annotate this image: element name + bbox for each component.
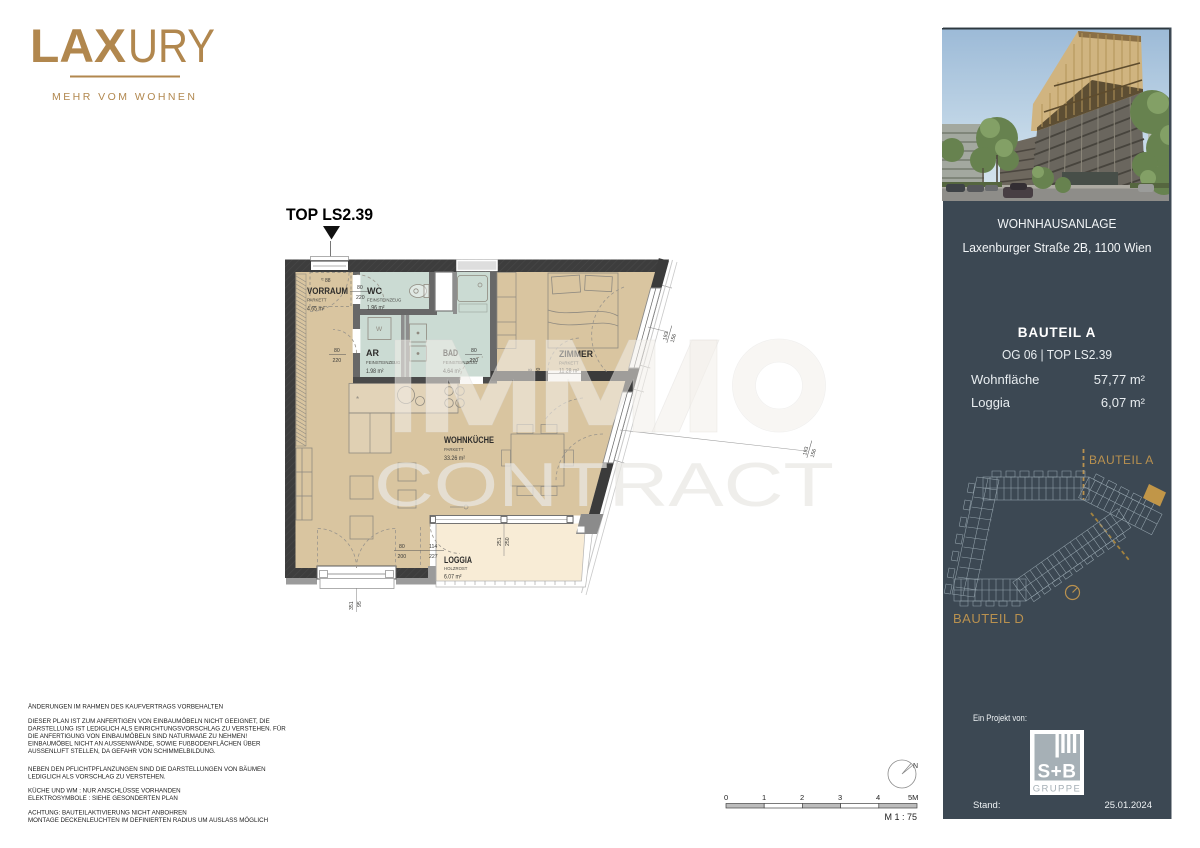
svg-text:WOHNKÜCHE: WOHNKÜCHE — [444, 435, 494, 446]
svg-text:2: 2 — [800, 793, 804, 802]
svg-text:57,77 m²: 57,77 m² — [1094, 372, 1146, 387]
svg-text:80: 80 — [357, 285, 363, 291]
svg-text:AUSSENLUFT STELLEN, DA GEFAHR: AUSSENLUFT STELLEN, DA GEFAHR VON SCHIMM… — [28, 748, 216, 755]
svg-text:WC: WC — [367, 286, 382, 296]
svg-text:ÄNDERUNGEN IM RAHMEN DES KAUFV: ÄNDERUNGEN IM RAHMEN DES KAUFVERTRAGS VO… — [28, 704, 223, 711]
svg-text:Ein Projekt von:: Ein Projekt von: — [973, 713, 1027, 724]
svg-text:PARKETT: PARKETT — [307, 298, 327, 303]
svg-text:Loggia: Loggia — [971, 395, 1011, 410]
svg-text:LAX: LAX — [30, 19, 126, 72]
svg-text:88: 88 — [325, 278, 331, 284]
svg-text:4.65 m²: 4.65 m² — [307, 306, 325, 313]
svg-text:80: 80 — [471, 348, 477, 354]
svg-text:GRUPPE: GRUPPE — [1033, 784, 1082, 795]
svg-text:FEINSTEINZEUG: FEINSTEINZEUG — [367, 298, 402, 303]
svg-text:6.07 m²: 6.07 m² — [444, 574, 462, 581]
svg-text:200: 200 — [398, 554, 407, 560]
svg-text:≈: ≈ — [321, 277, 324, 283]
svg-text:S+B: S+B — [1038, 762, 1077, 783]
svg-text:ACHTUNG: BAUTEILAKTIVIERUNG NI: ACHTUNG: BAUTEILAKTIVIERUNG NICHT ANBOHR… — [28, 810, 187, 817]
svg-text:DIESER PLAN IST ZUM ANFERTIGEN: DIESER PLAN IST ZUM ANFERTIGEN VON EINBA… — [28, 718, 270, 725]
svg-text:1.96 m²: 1.96 m² — [367, 305, 385, 312]
svg-text:DIE ANFERTIGUNG VON EINBAUMÖBE: DIE ANFERTIGUNG VON EINBAUMÖBELN SIND NA… — [28, 733, 247, 740]
svg-text:95: 95 — [357, 601, 363, 607]
svg-text:Laxenburger Straße 2B, 1100 Wi: Laxenburger Straße 2B, 1100 Wien — [963, 240, 1152, 255]
svg-text:W: W — [376, 326, 383, 333]
svg-text:3: 3 — [838, 793, 842, 802]
svg-text:80: 80 — [399, 544, 405, 550]
svg-text:DARSTELLUNG IST LEDIGLICH ALS: DARSTELLUNG IST LEDIGLICH ALS EINRICHTUN… — [28, 726, 286, 733]
svg-text:OG 06 | TOP LS2.39: OG 06 | TOP LS2.39 — [1002, 347, 1112, 362]
svg-text:Wohnfläche: Wohnfläche — [971, 372, 1039, 387]
svg-text:BAUTEIL A: BAUTEIL A — [1089, 453, 1154, 467]
svg-text:220: 220 — [536, 367, 542, 376]
svg-text:220: 220 — [333, 358, 342, 364]
svg-text:220: 220 — [356, 295, 365, 301]
svg-text:EINBAUMÖBEL NICHT AN AUSSENWÄN: EINBAUMÖBEL NICHT AN AUSSENWÄNDE, SOWIE … — [28, 741, 261, 748]
svg-text:LOGGIA: LOGGIA — [444, 555, 472, 565]
svg-text:TOP LS2.39: TOP LS2.39 — [286, 205, 373, 224]
svg-text:4: 4 — [876, 793, 880, 802]
svg-text:NEBEN DEN PFLICHTPFLANZUNGEN S: NEBEN DEN PFLICHTPFLANZUNGEN SIND DIE DA… — [28, 766, 266, 773]
svg-text:251: 251 — [497, 537, 503, 546]
svg-text:M 1 : 75: M 1 : 75 — [884, 812, 917, 822]
svg-text:WOHNHAUSANLAGE: WOHNHAUSANLAGE — [998, 217, 1117, 231]
svg-text:CONTRACT: CONTRACT — [374, 451, 834, 520]
svg-text:220: 220 — [470, 358, 479, 364]
svg-text:N: N — [913, 763, 918, 770]
svg-text:HOLZROST: HOLZROST — [444, 566, 468, 571]
svg-text:BAUTEIL D: BAUTEIL D — [953, 611, 1024, 626]
svg-text:0: 0 — [724, 793, 728, 802]
svg-text:URY: URY — [128, 19, 215, 72]
svg-text:BAUTEIL A: BAUTEIL A — [1018, 325, 1096, 340]
svg-text:*: * — [356, 395, 359, 404]
svg-text:1.98 m²: 1.98 m² — [366, 368, 384, 375]
svg-text:ELEKTROSYMBOLE : SIEHE GESONDE: ELEKTROSYMBOLE : SIEHE GESONDERTEN PLAN — [28, 795, 178, 802]
svg-text:AR: AR — [366, 348, 379, 358]
svg-text:KÜCHE UND WM : NUR ANSCHLÜSSE: KÜCHE UND WM : NUR ANSCHLÜSSE VORHANDEN — [28, 788, 181, 795]
svg-text:VORRAUM: VORRAUM — [307, 286, 348, 296]
svg-text:114: 114 — [429, 544, 437, 550]
svg-text:1: 1 — [762, 793, 766, 802]
svg-text:Stand:: Stand: — [973, 800, 1000, 811]
svg-text:227: 227 — [429, 554, 438, 560]
svg-text:250: 250 — [505, 537, 511, 546]
svg-text:351: 351 — [349, 601, 355, 610]
svg-text:6,07 m²: 6,07 m² — [1101, 395, 1146, 410]
svg-text:25.01.2024: 25.01.2024 — [1104, 800, 1152, 811]
svg-text:MONTAGE DECKENLEUCHTEN IM DEFI: MONTAGE DECKENLEUCHTEN IM DEFINIERTEN RA… — [28, 817, 268, 824]
svg-text:80: 80 — [334, 348, 340, 354]
svg-text:5M: 5M — [908, 793, 918, 802]
svg-text:MEHR VOM WOHNEN: MEHR VOM WOHNEN — [52, 91, 195, 103]
svg-text:LEDIGLICH ALS VORSCHLAG ZU VER: LEDIGLICH ALS VORSCHLAG ZU VERSTEHEN. — [28, 774, 166, 781]
